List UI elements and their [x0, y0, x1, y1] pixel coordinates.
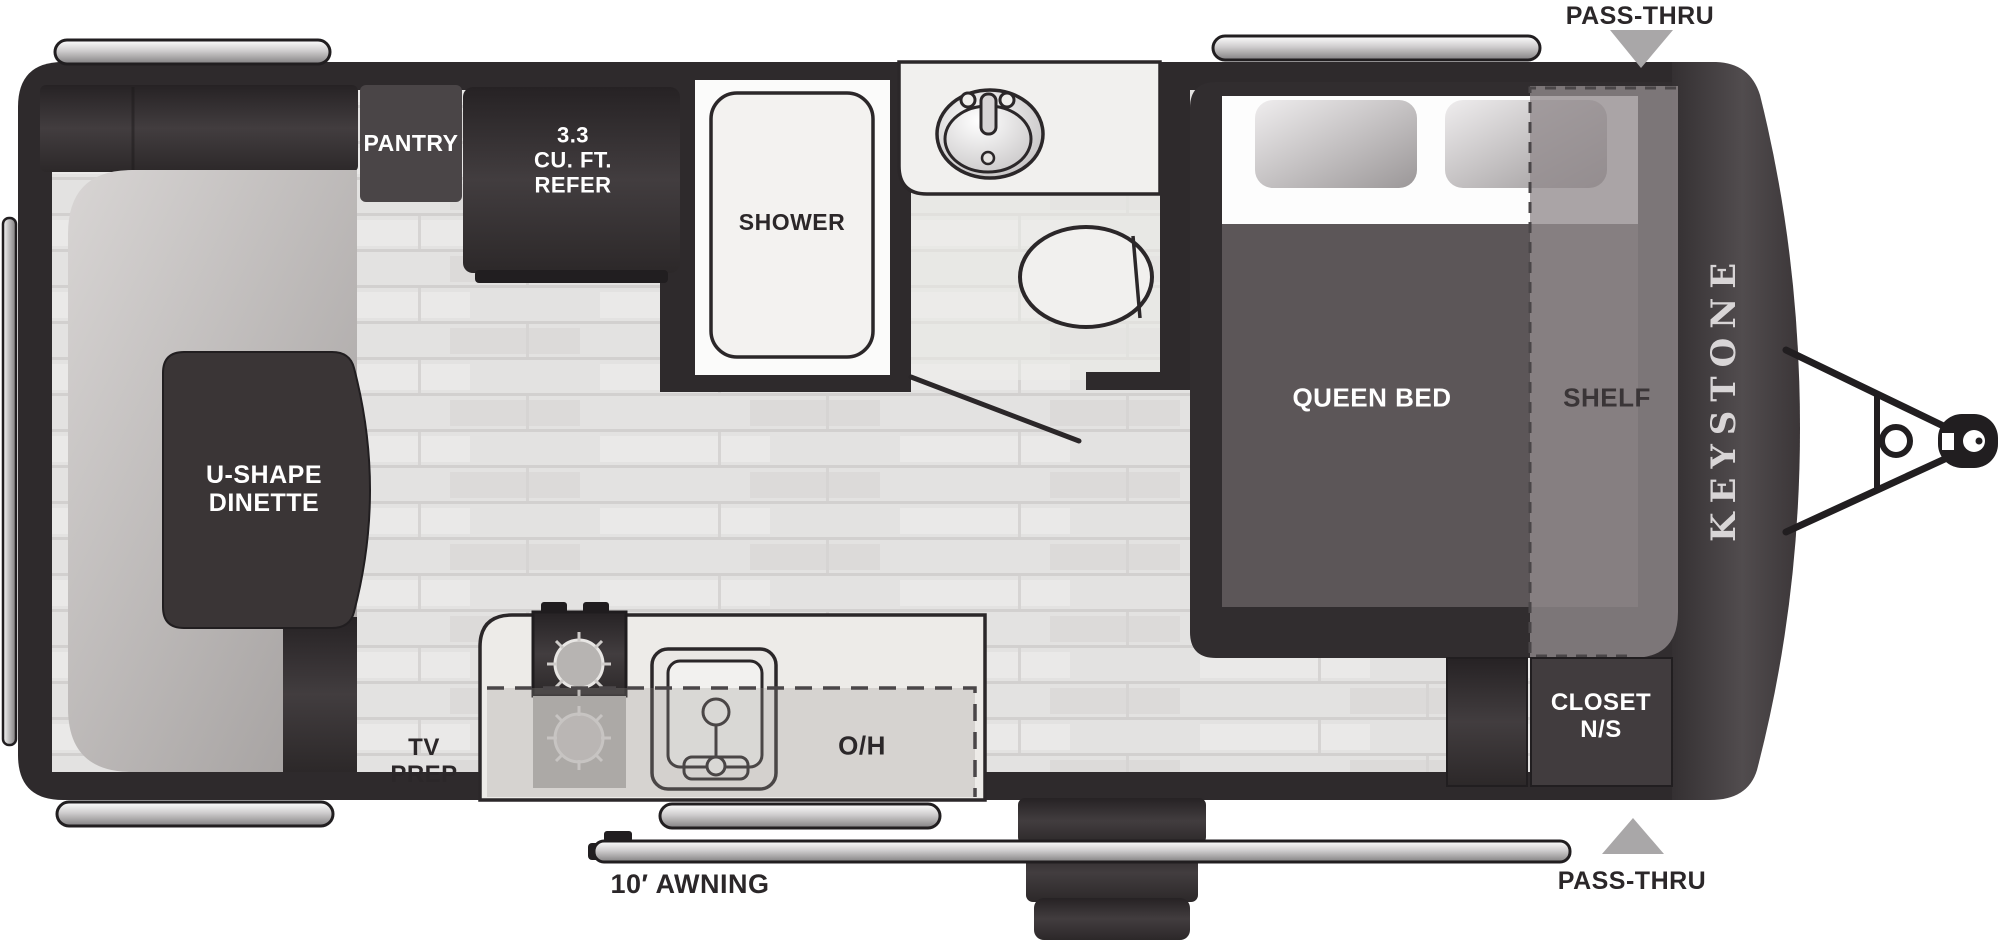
overhead-region — [487, 688, 975, 797]
sink-knob-right — [1000, 93, 1014, 107]
floorplan-canvas: PANTRY 3.3 CU. FT. REFER SHOWER U-SHAPE … — [0, 0, 2000, 943]
pass-thru-arrow-bottom — [1602, 818, 1664, 854]
entry-step — [1018, 798, 1206, 940]
sink-faucet — [981, 94, 996, 134]
sink-knob-left — [961, 93, 975, 107]
rear-bumper — [3, 218, 16, 745]
window-rear-bottom — [57, 802, 333, 826]
dinette-seat-back — [283, 617, 357, 772]
sink-drain — [982, 152, 994, 164]
tongue-hitch — [1786, 350, 1998, 532]
pantry-cabinet — [360, 85, 462, 202]
closet-cabinet-small — [1447, 658, 1527, 786]
window-rear-top — [55, 40, 330, 64]
window-kitchen-bottom — [660, 804, 940, 828]
shower-pan — [711, 93, 873, 357]
refrigerator-base — [475, 270, 668, 283]
pillow-left — [1255, 100, 1417, 188]
refrigerator — [463, 87, 680, 273]
window-bedroom-top — [1213, 36, 1540, 60]
front-cap — [1672, 62, 1800, 800]
shelf-overlay — [1530, 86, 1678, 658]
floorplan-drawing — [0, 0, 2000, 943]
overhead-cabinet — [40, 85, 358, 172]
dinette-table — [163, 352, 370, 628]
closet-cabinet — [1531, 658, 1672, 786]
